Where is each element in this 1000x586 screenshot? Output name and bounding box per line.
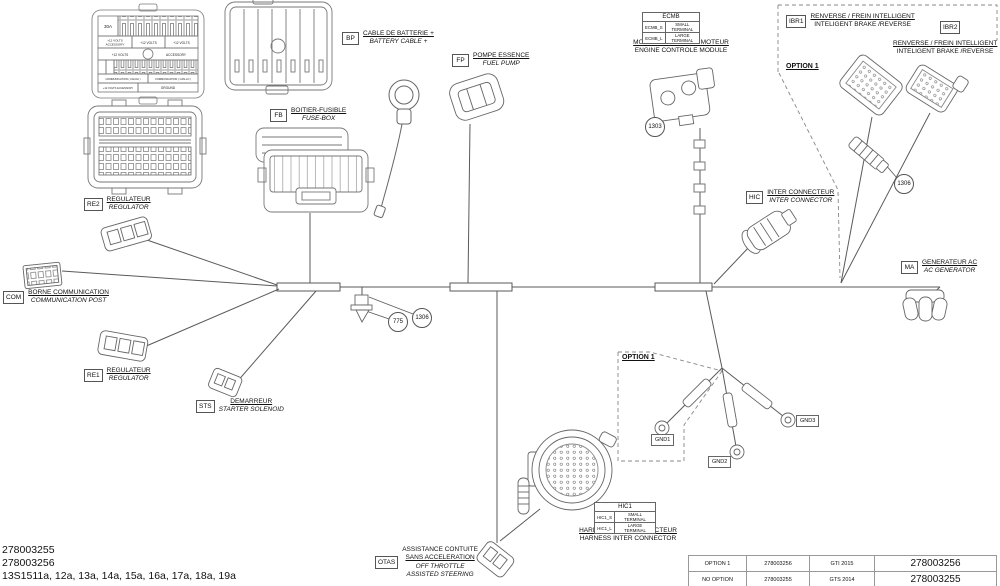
ecmb-row-small-key: ECMB_S bbox=[643, 22, 666, 33]
callout-1306-b: 1306 bbox=[894, 174, 914, 194]
ecmb-table-header: ECMB bbox=[643, 13, 700, 22]
legend-30a: 30A bbox=[104, 24, 112, 29]
label-sts: STS DEMARREURSTARTER SOLENOID bbox=[196, 398, 284, 415]
fuse-box-drawing bbox=[256, 128, 374, 212]
ref-r2-part-big: 278003255 bbox=[875, 572, 997, 586]
ground-terminals bbox=[655, 378, 795, 459]
ref-r1-model: GTI 2015 bbox=[810, 556, 875, 572]
otas-label-fr1: ASSISTANCE CONTUITE bbox=[402, 546, 478, 554]
label-re1: RE1 REGULATEURREGULATOR bbox=[84, 367, 151, 384]
legend-mid-left: +12 VOLTS bbox=[112, 53, 129, 57]
ref-r2-model: GTS 2014 bbox=[810, 572, 875, 586]
label-ibr2: RENVERSE / FREIN INTELLIGENT INTELIGENT … bbox=[893, 40, 997, 57]
ibr1-connector bbox=[837, 53, 904, 118]
ma-label-en: AC GENERATOR bbox=[922, 267, 977, 275]
footer-sheet-list: 13S1511a, 12a, 13a, 14a, 15a, 16a, 17a, … bbox=[2, 570, 236, 583]
legend-12v-b: +12 VOLTS bbox=[173, 41, 190, 45]
legend-ground: GROUND bbox=[161, 86, 176, 90]
callout-leaders bbox=[366, 112, 897, 319]
ac-generator-connector bbox=[902, 290, 948, 321]
label-bp: BP CABLE DE BATTERIE +BATTERY CABLE + bbox=[342, 30, 434, 47]
legend-comm-hi: COMMUNICATION ( CAN-HI ) bbox=[105, 77, 140, 81]
ref-r1-option: OPTION 1 bbox=[689, 556, 747, 572]
fp-label-en: FUEL PUMP bbox=[473, 60, 529, 68]
label-fb: FB BOITIER-FUSIBLEFUSE-BOX bbox=[270, 107, 346, 124]
hic1-row-large-val: LARGE TERMINAL bbox=[615, 523, 656, 534]
bp-label-en: BATTERY CABLE + bbox=[363, 38, 434, 46]
sleeve-part bbox=[518, 478, 529, 514]
gnd2-label: GND2 bbox=[708, 456, 731, 468]
inter-connector-hic bbox=[738, 204, 800, 257]
ecmb-row-small-val: SMALL TERMINAL bbox=[665, 22, 699, 33]
regulator-re2-connector bbox=[100, 216, 153, 252]
hic1-label-en: HARNESS INTER CONNECTOR bbox=[568, 535, 688, 543]
ecmb-row-large-key: ECMB_L bbox=[643, 33, 666, 44]
otas-label-en2: ASSISTED STEERING bbox=[402, 571, 478, 579]
sts-label-fr: DEMARREUR bbox=[219, 398, 284, 406]
wiring-diagram-page: 30A +12 VOLTS ACCESSORY +12 VOLTS +12 VO… bbox=[0, 0, 1000, 586]
fp-code-box: FP bbox=[452, 54, 469, 67]
footer-part-a: 278003255 bbox=[2, 544, 236, 557]
diagram-linework: 30A +12 VOLTS ACCESSORY +12 VOLTS +12 VO… bbox=[0, 0, 1000, 586]
bp-label-fr: CABLE DE BATTERIE + bbox=[363, 30, 434, 38]
ibr2-code-box: IBR2 bbox=[940, 21, 960, 34]
label-ibr1: IBR1 RENVERSE / FREIN INTELLIGENTINTELIG… bbox=[786, 13, 915, 30]
regulator-re1-connector bbox=[97, 330, 148, 362]
ma-label-fr: GENERATEUR AC bbox=[922, 259, 977, 267]
sts-label-en: STARTER SOLENOID bbox=[219, 406, 284, 414]
re2-label-en: REGULATOR bbox=[107, 204, 151, 212]
part-reference-table: OPTION 1 278003256 GTI 2015 278003256 NO… bbox=[688, 555, 997, 586]
ref-r1-part-big: 278003256 bbox=[875, 556, 997, 572]
re1-label-fr: REGULATEUR bbox=[107, 367, 151, 375]
footer-part-numbers: 278003255 278003256 13S1511a, 12a, 13a, … bbox=[2, 544, 236, 583]
option1-label-middle: OPTION 1 bbox=[622, 354, 655, 361]
callout-1306-a: 1306 bbox=[412, 308, 432, 328]
sensor-775-drawing bbox=[351, 295, 372, 322]
option1-label-topright: OPTION 1 bbox=[786, 63, 819, 70]
otas-code-box: OTAS bbox=[375, 556, 398, 569]
ecmb-terminal-table: ECMB ECMB_SSMALL TERMINAL ECMB_LLARGE TE… bbox=[642, 12, 700, 44]
label-fp: FP POMPE ESSENCEFUEL PUMP bbox=[452, 52, 529, 69]
harness-inter-connector-drawing bbox=[528, 430, 617, 510]
legend-12v-a: +12 VOLTS bbox=[140, 41, 157, 45]
ecmb-row-large-val: LARGE TERMINAL bbox=[665, 33, 699, 44]
ibr1-label-en: INTELIGENT BRAKE /REVERSE bbox=[810, 21, 914, 29]
fb-label-fr: BOITIER-FUSIBLE bbox=[291, 107, 346, 115]
hic1-row-small-key: HIC1_S bbox=[595, 512, 615, 523]
starter-solenoid-connector bbox=[207, 367, 243, 398]
fb-code-box: FB bbox=[270, 109, 287, 122]
label-otas: OTAS ASSISTANCE CONTUITE SANS ACCELERATI… bbox=[375, 546, 478, 580]
ref-r2-part: 278003255 bbox=[747, 572, 810, 586]
ibr1-code-box: IBR1 bbox=[786, 15, 806, 28]
otas-connector bbox=[475, 540, 516, 579]
gnd3-label: GND3 bbox=[796, 415, 819, 427]
ref-r1-part: 278003256 bbox=[747, 556, 810, 572]
hic-code-box: HIC bbox=[746, 191, 763, 204]
table-row: NO OPTION 278003255 GTS 2014 278003255 bbox=[689, 572, 997, 586]
ecm-connector-pinout bbox=[84, 100, 206, 194]
label-ma: MA GENERATEUR ACAC GENERATOR bbox=[901, 259, 977, 276]
callout-775: 775 bbox=[388, 312, 408, 332]
hic-label-en: INTER CONNECTOR bbox=[767, 197, 834, 205]
hic1-table-header: HIC1 bbox=[595, 503, 656, 512]
fp-label-fr: POMPE ESSENCE bbox=[473, 52, 529, 60]
table-row: OPTION 1 278003256 GTI 2015 278003256 bbox=[689, 556, 997, 572]
ibr2-connector bbox=[904, 54, 970, 117]
hic1-row-small-val: SMALL TERMINAL bbox=[615, 512, 656, 523]
ma-code-box: MA bbox=[901, 261, 918, 274]
legend-bottom-acc: +12 VOLTS ACCESSORY bbox=[103, 86, 134, 90]
legend-mid-right: ACCESSORY bbox=[166, 53, 187, 57]
bp-code-box: BP bbox=[342, 32, 359, 45]
com-label-en: COMMUNICATION POST bbox=[28, 297, 109, 305]
fuse-box-legend: 30A +12 VOLTS ACCESSORY +12 VOLTS +12 VO… bbox=[92, 4, 204, 104]
otas-label-fr2: SANS ACCELERATION bbox=[402, 554, 478, 562]
ibr2-label-fr: RENVERSE / FREIN INTELLIGENT bbox=[893, 40, 997, 48]
communication-post-connector bbox=[23, 262, 62, 289]
legend-top-acc-l2: ACCESSORY bbox=[106, 43, 125, 47]
label-com: COM BORNE COMMUNICATIONCOMMUNICATION POS… bbox=[3, 289, 109, 306]
fb-label-en: FUSE-BOX bbox=[291, 115, 346, 123]
hic-label-fr: INTER CONNECTEUR bbox=[767, 189, 834, 197]
fuse-panel-cover bbox=[225, 0, 332, 94]
label-hic: HIC INTER CONNECTEURINTER CONNECTOR bbox=[746, 189, 834, 206]
ref-r2-option: NO OPTION bbox=[689, 572, 747, 586]
legend-comm-lo: COMMUNICATION ( CAN-LO ) bbox=[155, 77, 191, 81]
inline-part-1306 bbox=[848, 136, 890, 174]
footer-part-b: 278003256 bbox=[2, 557, 236, 570]
sts-code-box: STS bbox=[196, 400, 215, 413]
com-code-box: COM bbox=[3, 291, 24, 304]
com-label-fr: BORNE COMMUNICATION bbox=[28, 289, 109, 297]
main-harness bbox=[62, 113, 940, 543]
battery-cable-drawing bbox=[374, 80, 419, 218]
re2-code-box: RE2 bbox=[84, 198, 103, 211]
re1-label-en: REGULATOR bbox=[107, 375, 151, 383]
hic1-terminal-table: HIC1 HIC1_SSMALL TERMINAL HIC1_LLARGE TE… bbox=[594, 502, 656, 534]
re1-code-box: RE1 bbox=[84, 369, 103, 382]
callout-1303: 1303 bbox=[645, 117, 665, 137]
ecmb-label-en: ENGINE CONTROLE MODULE bbox=[616, 47, 746, 55]
ibr1-label-fr: RENVERSE / FREIN INTELLIGENT bbox=[810, 13, 914, 21]
otas-label-en1: OFF THROTTLE bbox=[402, 563, 478, 571]
ibr2-label-en: INTELIGENT BRAKE /REVERSE bbox=[893, 48, 997, 56]
hic1-row-large-key: HIC1_L bbox=[595, 523, 615, 534]
fuel-pump-connector bbox=[447, 71, 506, 123]
gnd1-label: GND1 bbox=[651, 434, 674, 446]
re2-label-fr: REGULATEUR bbox=[107, 196, 151, 204]
label-re2: RE2 REGULATEURREGULATOR bbox=[84, 196, 151, 213]
